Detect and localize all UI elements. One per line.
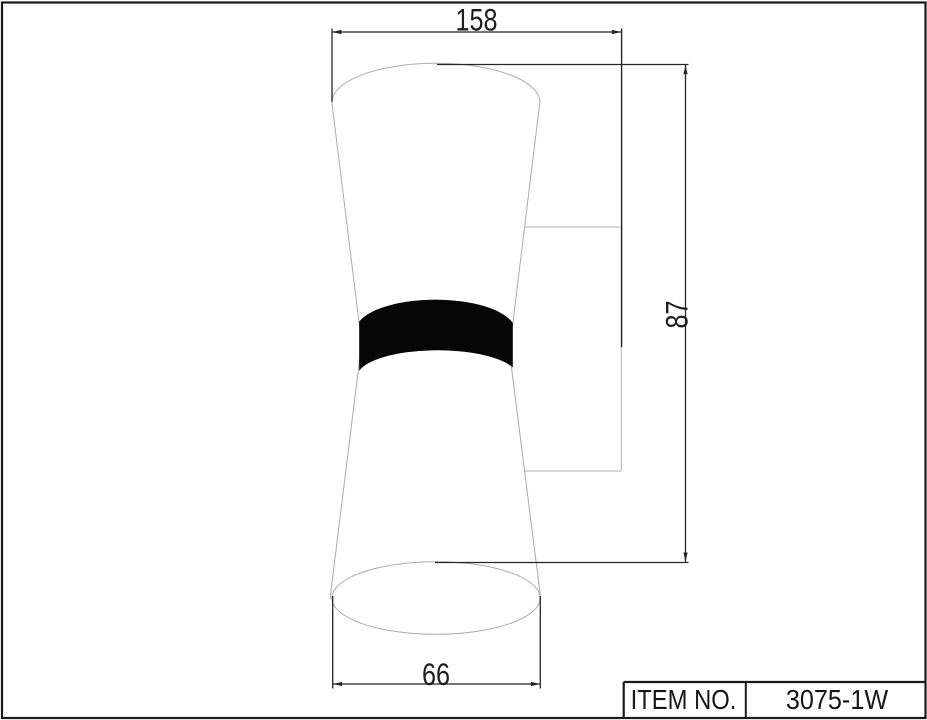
svg-text:3075-1W: 3075-1W (786, 684, 889, 716)
svg-text:ITEM NO.: ITEM NO. (631, 683, 737, 715)
svg-text:66: 66 (422, 657, 450, 692)
svg-text:158: 158 (455, 3, 497, 38)
svg-text:87: 87 (660, 300, 695, 328)
